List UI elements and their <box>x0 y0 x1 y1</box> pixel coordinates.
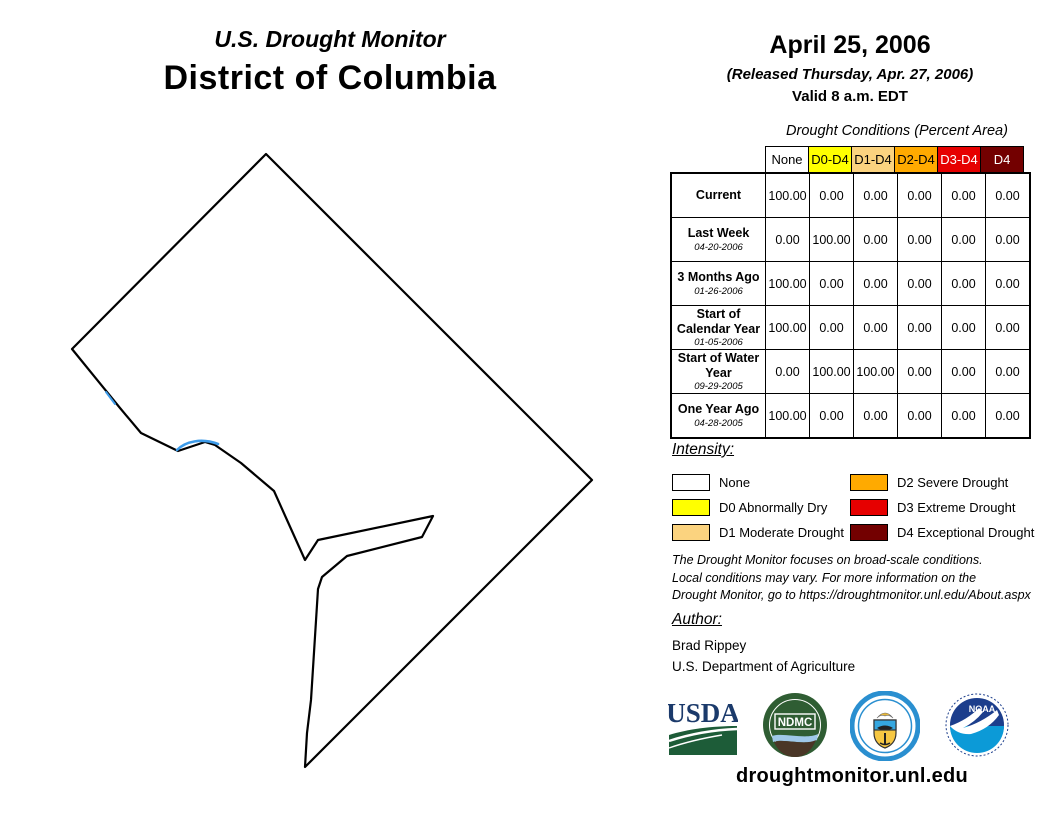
value-cell: 0.00 <box>854 173 898 218</box>
value-cell: 0.00 <box>898 306 942 350</box>
legend-grid: None D0 Abnormally Dry D1 Moderate Droug… <box>672 470 1034 545</box>
table-row: Start of Water Year 09-29-2005 0.00 100.… <box>671 350 1030 394</box>
value-cell: 100.00 <box>854 350 898 394</box>
noaa-logo: NOAA <box>945 692 1009 763</box>
table-row: Current 100.00 0.00 0.00 0.00 0.00 0.00 <box>671 173 1030 218</box>
legend-swatch-d1 <box>672 524 710 541</box>
row-label-cell: Current <box>671 173 766 218</box>
map-date: April 25, 2006 <box>672 31 1028 60</box>
legend-item: None <box>672 474 850 491</box>
value-cell: 100.00 <box>810 218 854 262</box>
value-cell: 0.00 <box>942 394 986 439</box>
legend-label: D0 Abnormally Dry <box>719 500 827 515</box>
svg-text:NDMC: NDMC <box>778 717 813 729</box>
row-date: 09-29-2005 <box>672 381 765 392</box>
legend-item: D4 Exceptional Drought <box>850 524 1034 541</box>
value-cell: 0.00 <box>854 394 898 439</box>
row-label: Start of Calendar Year <box>672 307 765 336</box>
value-cell: 0.00 <box>942 306 986 350</box>
value-cell: 0.00 <box>942 262 986 306</box>
value-cell: 0.00 <box>810 394 854 439</box>
row-label-cell: 3 Months Ago 01-26-2006 <box>671 262 766 306</box>
row-date: 01-26-2006 <box>672 286 765 297</box>
value-cell: 0.00 <box>942 173 986 218</box>
conditions-table-title: Drought Conditions (Percent Area) <box>737 123 1056 139</box>
value-cell: 0.00 <box>986 262 1031 306</box>
value-cell: 0.00 <box>810 306 854 350</box>
value-cell: 0.00 <box>898 173 942 218</box>
author-name: Brad Rippey <box>672 638 855 653</box>
header-cell-d2-d4: D2-D4 <box>894 146 938 173</box>
value-cell: 100.00 <box>766 306 810 350</box>
header-cell-d0-d4: D0-D4 <box>808 146 852 173</box>
svg-text:NOAA: NOAA <box>969 704 996 714</box>
row-label-cell: One Year Ago 04-28-2005 <box>671 394 766 439</box>
title-block: U.S. Drought Monitor District of Columbi… <box>40 26 620 98</box>
value-cell: 0.00 <box>898 350 942 394</box>
author-org: U.S. Department of Agriculture <box>672 659 855 674</box>
disclaimer: The Drought Monitor focuses on broad-sca… <box>672 552 1052 605</box>
release-date: (Released Thursday, Apr. 27, 2006) <box>672 66 1028 83</box>
value-cell: 100.00 <box>810 350 854 394</box>
value-cell: 0.00 <box>898 394 942 439</box>
legend-heading: Intensity: <box>672 441 1034 459</box>
date-block: April 25, 2006 (Released Thursday, Apr. … <box>672 31 1028 105</box>
row-label: Current <box>672 188 765 202</box>
legend-label: D3 Extreme Drought <box>897 500 1016 515</box>
value-cell: 100.00 <box>766 394 810 439</box>
value-cell: 0.00 <box>766 218 810 262</box>
value-cell: 0.00 <box>810 262 854 306</box>
ndmc-logo-icon: NDMC <box>762 691 828 759</box>
ndmc-logo: NDMC <box>762 691 828 764</box>
table-row: One Year Ago 04-28-2005 100.00 0.00 0.00… <box>671 394 1030 439</box>
legend-swatch-d2 <box>850 474 888 491</box>
disclaimer-line: The Drought Monitor focuses on broad-sca… <box>672 552 1052 570</box>
svg-text:USDA: USDA <box>668 698 738 728</box>
legend-swatch-d0 <box>672 499 710 516</box>
header-cell-d4: D4 <box>980 146 1024 173</box>
report-title: U.S. Drought Monitor <box>40 26 620 53</box>
legend-swatch-none <box>672 474 710 491</box>
table-row: Last Week 04-20-2006 0.00 100.00 0.00 0.… <box>671 218 1030 262</box>
row-label: One Year Ago <box>672 402 765 416</box>
value-cell: 0.00 <box>898 218 942 262</box>
region-title: District of Columbia <box>40 59 620 98</box>
legend-label: D2 Severe Drought <box>897 475 1008 490</box>
value-cell: 100.00 <box>766 262 810 306</box>
row-date: 04-28-2005 <box>672 418 765 429</box>
row-label: Start of Water Year <box>672 351 765 380</box>
row-label-cell: Last Week 04-20-2006 <box>671 218 766 262</box>
site-url: droughtmonitor.unl.edu <box>672 765 1032 788</box>
row-label: 3 Months Ago <box>672 270 765 284</box>
value-cell: 0.00 <box>854 218 898 262</box>
commerce-logo <box>850 691 920 766</box>
conditions-header-row: None D0-D4 D1-D4 D2-D4 D3-D4 D4 <box>765 146 1024 173</box>
legend-label: D1 Moderate Drought <box>719 525 844 540</box>
usda-logo: USDA <box>668 697 738 764</box>
value-cell: 0.00 <box>810 173 854 218</box>
header-cell-d1-d4: D1-D4 <box>851 146 895 173</box>
legend-label: D4 Exceptional Drought <box>897 525 1034 540</box>
legend-item: D2 Severe Drought <box>850 474 1034 491</box>
commerce-logo-icon <box>850 691 920 761</box>
row-date: 01-05-2006 <box>672 337 765 348</box>
legend-item: D1 Moderate Drought <box>672 524 850 541</box>
value-cell: 0.00 <box>942 350 986 394</box>
row-label-cell: Start of Calendar Year 01-05-2006 <box>671 306 766 350</box>
value-cell: 0.00 <box>986 350 1031 394</box>
value-cell: 0.00 <box>854 306 898 350</box>
usda-logo-icon: USDA <box>668 697 738 759</box>
value-cell: 0.00 <box>986 173 1031 218</box>
value-cell: 0.00 <box>766 350 810 394</box>
value-cell: 0.00 <box>986 306 1031 350</box>
row-label-cell: Start of Water Year 09-29-2005 <box>671 350 766 394</box>
legend-swatch-d4 <box>850 524 888 541</box>
intensity-legend: Intensity: None D0 Abnormally Dry D1 Mod… <box>672 441 1034 545</box>
legend-item: D3 Extreme Drought <box>850 499 1034 516</box>
value-cell: 100.00 <box>766 173 810 218</box>
noaa-logo-icon: NOAA <box>945 692 1009 758</box>
value-cell: 0.00 <box>898 262 942 306</box>
header-cell-none: None <box>765 146 809 173</box>
table-row: Start of Calendar Year 01-05-2006 100.00… <box>671 306 1030 350</box>
legend-swatch-d3 <box>850 499 888 516</box>
disclaimer-line: Local conditions may vary. For more info… <box>672 570 1052 588</box>
table-row: 3 Months Ago 01-26-2006 100.00 0.00 0.00… <box>671 262 1030 306</box>
river-sliver <box>106 392 115 404</box>
value-cell: 0.00 <box>854 262 898 306</box>
value-cell: 0.00 <box>986 394 1031 439</box>
value-cell: 0.00 <box>986 218 1031 262</box>
legend-label: None <box>719 475 750 490</box>
row-label: Last Week <box>672 226 765 240</box>
value-cell: 0.00 <box>942 218 986 262</box>
author-heading: Author: <box>672 611 855 629</box>
legend-item: D0 Abnormally Dry <box>672 499 850 516</box>
disclaimer-line: Drought Monitor, go to https://droughtmo… <box>672 587 1052 605</box>
valid-time: Valid 8 a.m. EDT <box>672 88 1028 105</box>
header-cell-d3-d4: D3-D4 <box>937 146 981 173</box>
dc-boundary-outline <box>72 154 592 767</box>
author-section: Author: Brad Rippey U.S. Department of A… <box>672 611 855 674</box>
row-date: 04-20-2006 <box>672 242 765 253</box>
conditions-table: Current 100.00 0.00 0.00 0.00 0.00 0.00 … <box>670 172 1031 439</box>
